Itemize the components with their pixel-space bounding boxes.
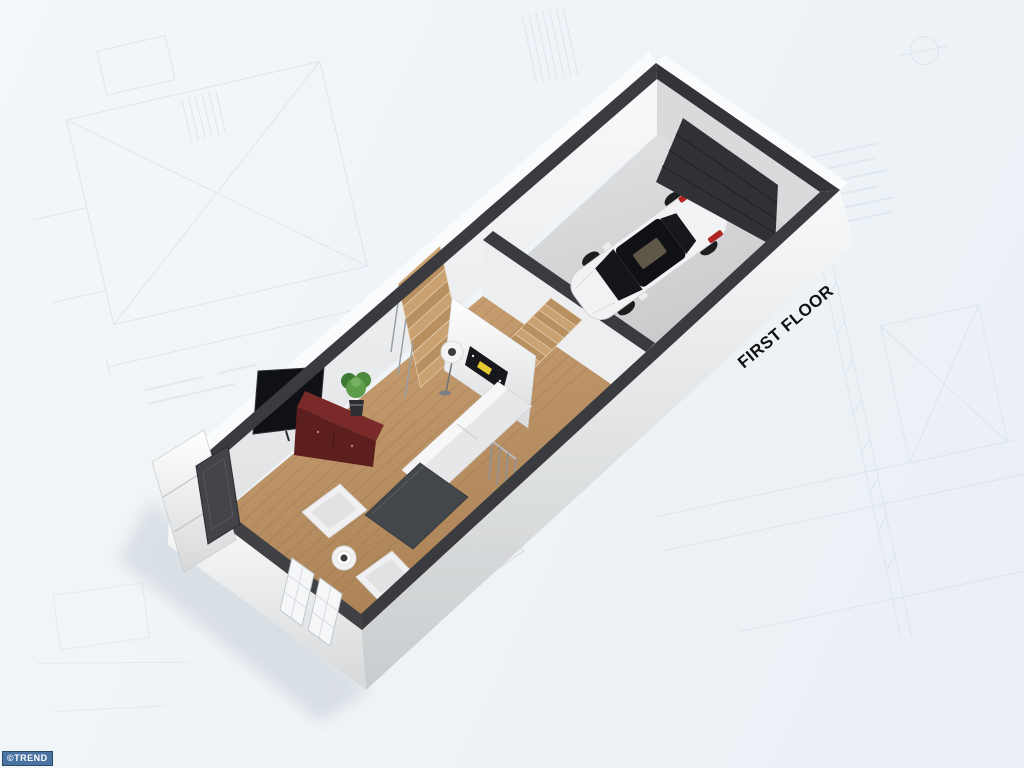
side-table-lamp [332, 546, 356, 570]
trend-watermark: ©TREND [2, 751, 53, 766]
floorplan-scene [0, 0, 1024, 768]
floorplan-render: FIRST FLOOR ©TREND [0, 0, 1024, 768]
